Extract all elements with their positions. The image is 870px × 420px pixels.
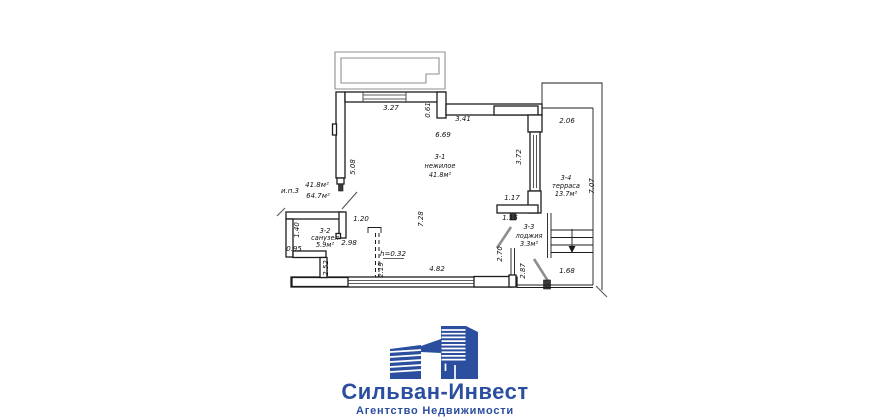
dim-3-72: 3.72 xyxy=(515,149,523,165)
dim-0-61: 0.61 xyxy=(424,102,432,118)
dim-7-28: 7.28 xyxy=(417,211,425,227)
room-id: 3-1 xyxy=(435,153,446,161)
room-3-2-label: 3-2 санузел 5.9м² xyxy=(311,227,339,249)
logo-subtitle: Агентство Недвижимости xyxy=(356,406,514,417)
room-area: 3.3м² xyxy=(520,240,538,248)
dim-1-20: 1.20 xyxy=(353,215,369,223)
unit-area-2: 64.7м² xyxy=(306,192,330,200)
dim-1-68: 1.68 xyxy=(559,267,575,275)
room-id: 3-3 xyxy=(524,223,535,231)
dim-3-27: 3.27 xyxy=(383,104,399,112)
dim-h-0-32: h=0.32 xyxy=(380,250,406,258)
dim-2-52: 2.52 xyxy=(322,260,330,276)
wall-end-tick xyxy=(596,286,607,297)
unit-area-1: 41.8м² xyxy=(305,181,329,189)
balcony-outline xyxy=(335,52,445,89)
room-type: лоджия xyxy=(515,232,543,240)
agency-logo: Сильван-Инвест Агентство Недвижимости xyxy=(0,321,870,417)
room-3-4-label: 3-4 терраса 13.7м² xyxy=(552,174,580,198)
stairs xyxy=(551,229,593,253)
dim-2-19: 2.19 xyxy=(377,262,385,278)
stairs-down-arrow-icon xyxy=(569,229,576,253)
buildings-icon xyxy=(387,321,483,379)
dim-7-07: 7.07 xyxy=(588,178,596,194)
logo-title: Сильван-Инвест xyxy=(341,381,528,403)
room-type: терраса xyxy=(552,182,580,190)
room-type: нежилое xyxy=(425,162,456,170)
room-id: 3-4 xyxy=(561,174,572,182)
open-door-stroke xyxy=(534,259,548,281)
dim-1-17: 1.17 xyxy=(504,194,520,202)
unit-name: и.п.3 xyxy=(281,187,299,195)
dim-0-95: 0.95 xyxy=(286,245,302,253)
wall-end-tick xyxy=(277,208,285,216)
dim-2-87: 2.87 xyxy=(519,263,527,279)
dim-1-15: 1.15 xyxy=(502,214,518,222)
open-door-stroke xyxy=(497,227,511,248)
room-3-3-label: 3-3 лоджия 3.3м² xyxy=(515,223,543,248)
dim-2-06: 2.06 xyxy=(559,117,575,125)
room-3-1-label: 3-1 нежилое 41.8м² xyxy=(425,153,456,179)
dim-2-70: 2.70 xyxy=(496,246,504,262)
dim-1-40: 1.40 xyxy=(293,222,301,238)
dim-3-41: 3.41 xyxy=(455,115,471,123)
dim-4-82: 4.82 xyxy=(429,265,445,273)
dim-6-69: 6.69 xyxy=(435,131,451,139)
room-area: 13.7м² xyxy=(555,190,578,198)
room-area: 41.8м² xyxy=(429,171,452,179)
dim-5-08: 5.08 xyxy=(349,159,357,175)
unit-label: и.п.3 41.8м² 64.7м² xyxy=(281,181,330,200)
door-swing-line xyxy=(342,192,357,209)
walls xyxy=(291,92,542,287)
dim-2-98: 2.98 xyxy=(341,239,357,247)
room-area: 5.9м² xyxy=(316,241,334,249)
